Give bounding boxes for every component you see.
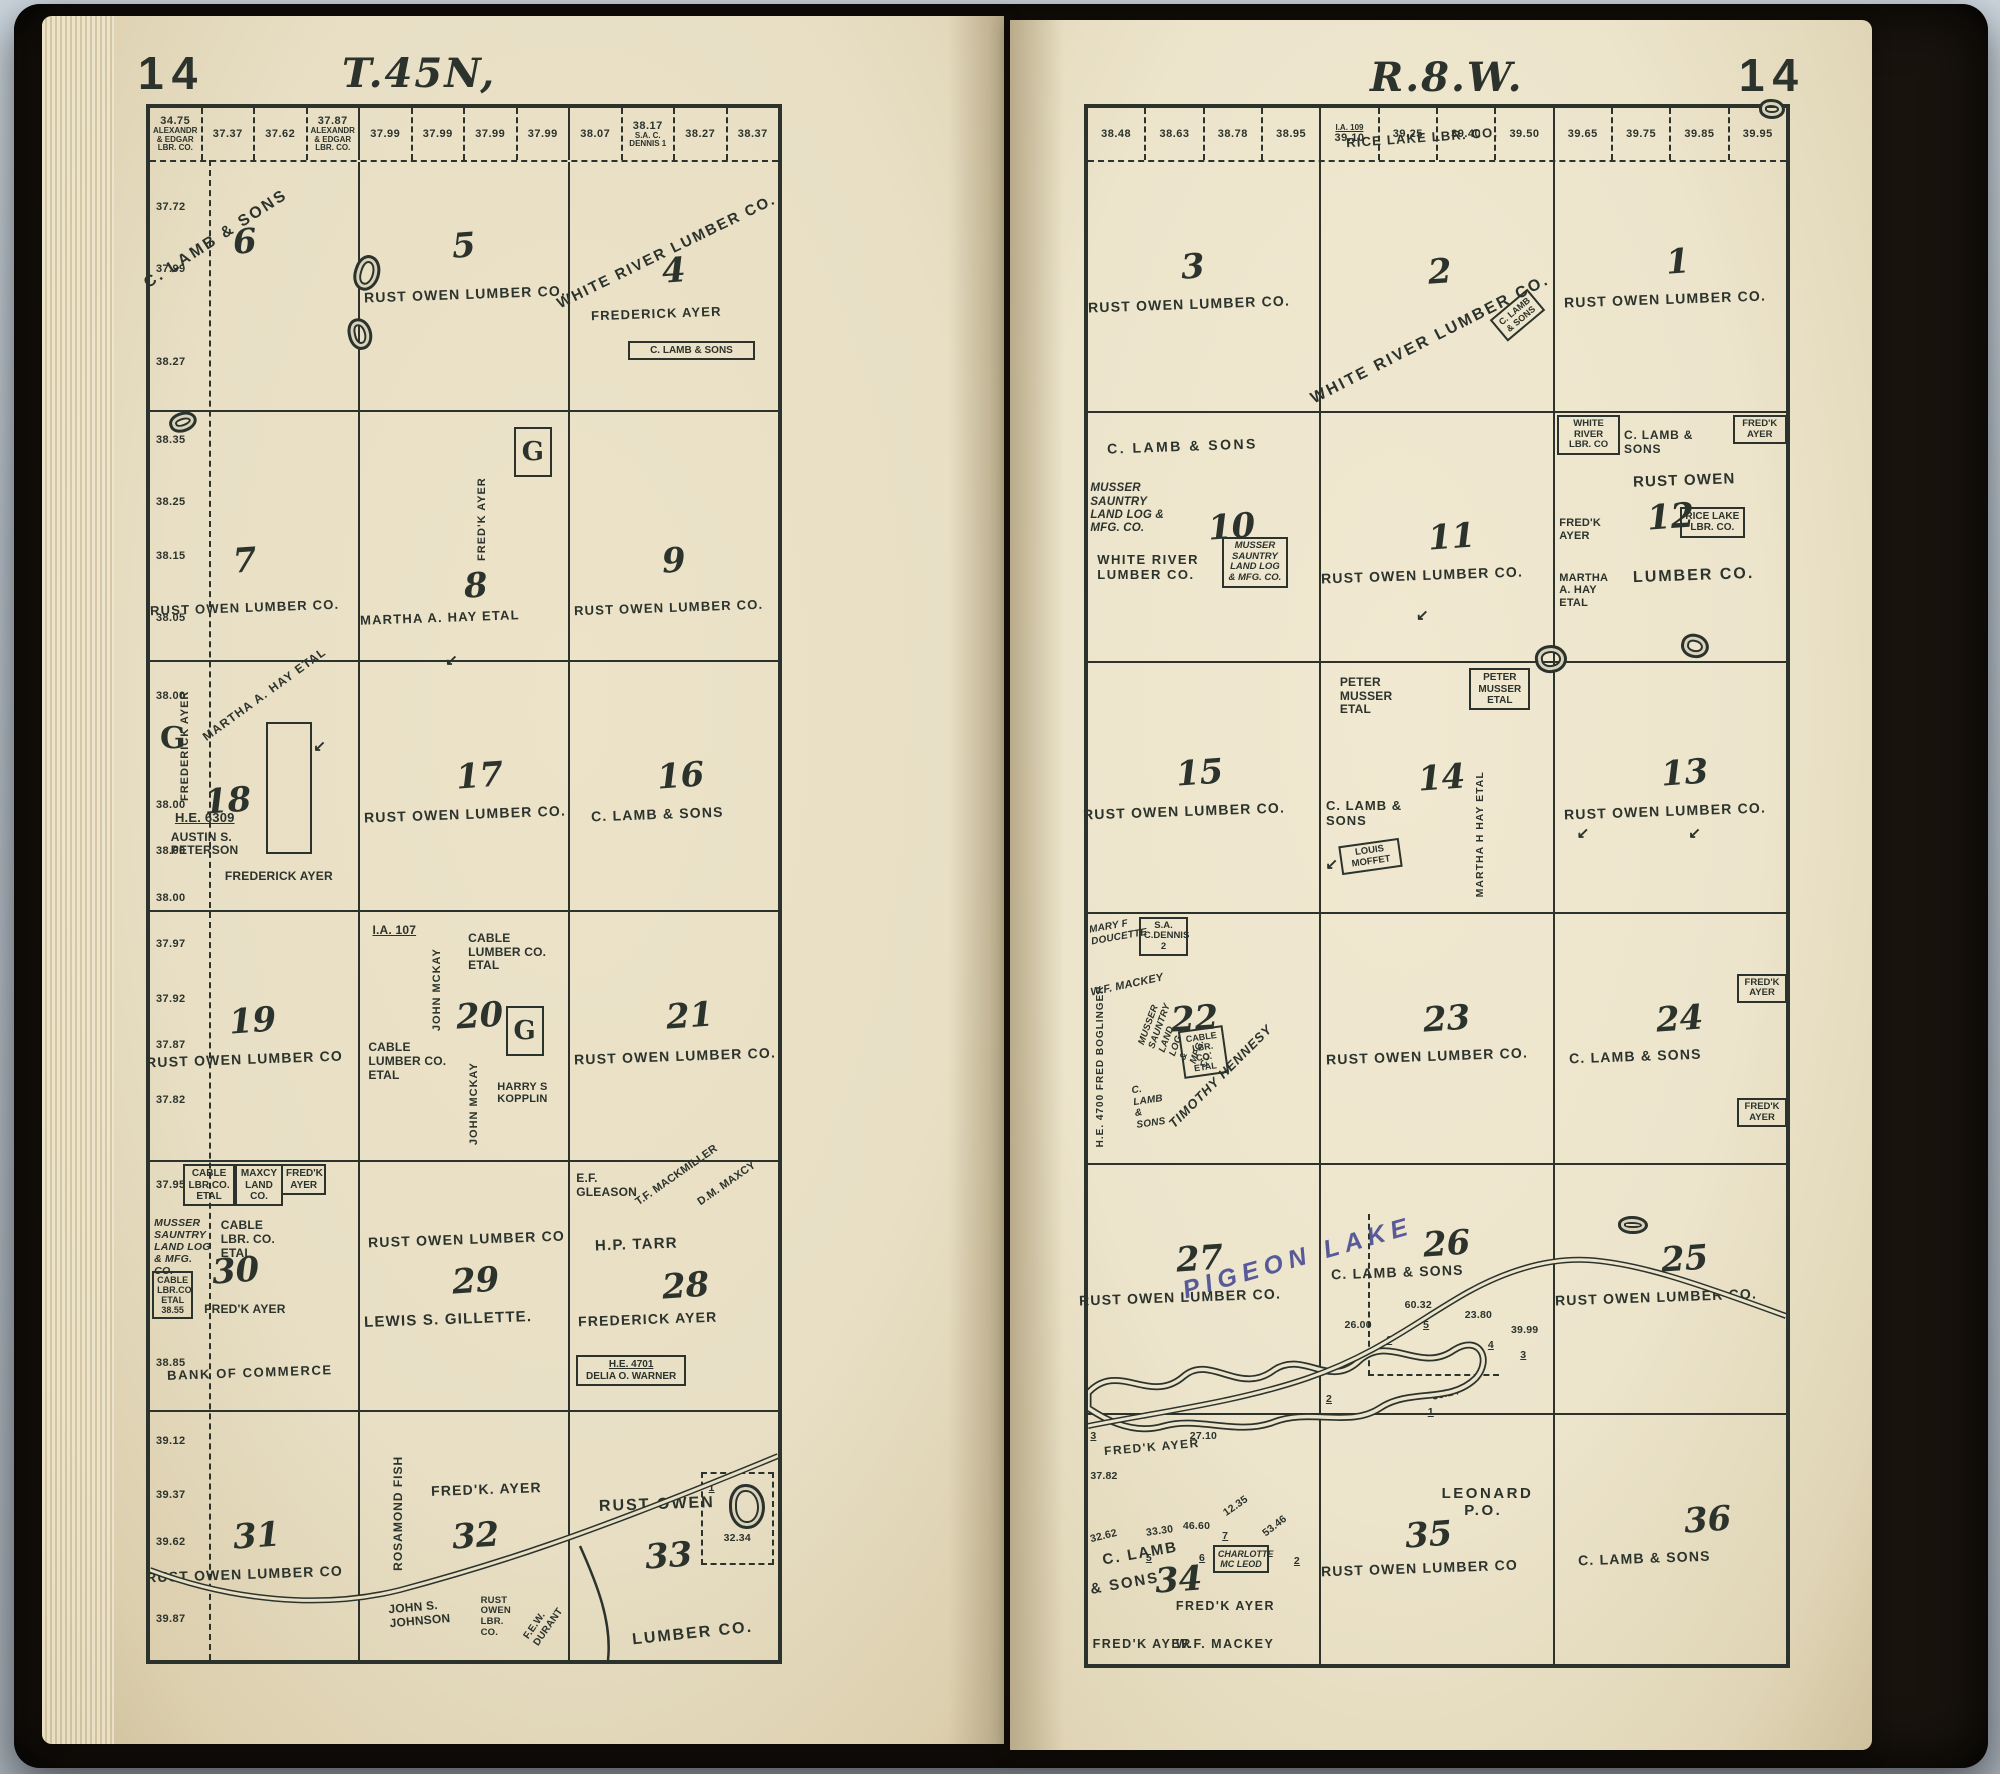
section-row: 15 RUST OWEN LUMBER CO. PETER MUSSER ETA… [1088,661,1786,912]
section-8-government-lot: G [514,427,552,477]
acre-value: 38.37 [738,128,768,140]
section-8-fredk-ayer: FRED'K AYER [476,432,488,561]
leonard-post-office: LEONARD P.O. [1442,1485,1525,1519]
acre-value: 38.48 [1101,128,1131,140]
section-23-number: 23 [1422,997,1472,1040]
section-12-lamb-sons: C. LAMB & SONS [1624,428,1693,456]
photo-of-plat-book: 14 T.45N, 34.75ALEXANDR & EDGAR LBR. CO.… [0,0,2000,1774]
section-row: 6 C. LAMB & SONS 5 RUST OWEN LUMBER CO. … [150,162,778,410]
range-label: R.8.W. [1370,54,1524,101]
section-29-lewis-gillette: LEWIS S. GILLETTE. [364,1308,533,1331]
acre-cell: 37.62 [253,108,306,160]
lot-acre: 46.60 [1183,1520,1210,1532]
edge-acre: 39.12 [156,1435,186,1447]
acre-owner: I.A. 109 [1335,124,1363,132]
section-3-owner: RUST OWEN LUMBER CO. [1088,293,1291,316]
lot-acre: 37.82 [1090,1470,1117,1482]
lot-acre: 33.30 [1145,1523,1174,1539]
section-32-few-durant: F.E.W. DURANT [521,1600,565,1649]
section-20: I.A. 107 JOHN MCKAY CABLE LUMBER CO. ETA… [358,912,568,1160]
edge-acre: 37.92 [156,993,186,1005]
section-1: 1 RUST OWEN LUMBER CO. [1553,162,1786,411]
acre-cell: 37.87ALEXANDR & EDGAR LBR. CO. [306,108,359,160]
section-33: RUST OWEN 33 1 32.34 LUMBER CO. [568,1412,778,1660]
section-33-owner: RUST OWEN [599,1494,715,1516]
section-14: PETER MUSSER ETAL PETER MUSSER ETAL 14 C… [1319,663,1552,912]
section-14-martha-hay-strip: MARTHA H HAY ETAL [1474,773,1486,897]
section-22-mary-doucette: MARY F DOUCETTE [1089,918,1134,948]
section-30-bank-of-commerce: BANK OF COMMERCE [166,1362,332,1383]
section-30-maxcy-land: MAXCY LAND CO. [235,1164,282,1206]
acre-cell: 37.99 [516,108,569,160]
section-grid-right: 3 RUST OWEN LUMBER CO. 2 WHITE RIVER LUM… [1088,162,1786,1664]
section-31-number: 31 [232,1515,282,1558]
section-12-rice-lake-box: RICE LAKE LBR. CO. [1680,507,1746,537]
section-14-peter-musser-ne: PETER MUSSER ETAL [1469,668,1530,710]
section-29-number: 29 [450,1260,500,1303]
edge-acre: 38.00 [156,845,186,857]
edge-acre: 38.85 [156,1357,186,1369]
acre-cell: 38.63 [1144,108,1202,160]
section-9-owner: RUST OWEN LUMBER CO. [574,597,764,619]
section-24-fredk-ayer-ne: FRED'K AYER [1737,974,1786,1003]
section-15-number: 15 [1175,751,1225,794]
section-10: C. LAMB & SONS MUSSER SAUNTRY LAND LOG &… [1088,413,1319,662]
section-23: 23 RUST OWEN LUMBER CO. [1319,914,1552,1163]
right-page: R.8.W. 14 38.48 38.63 38.78 38.95 I.A. 1… [1010,20,1872,1750]
section-20-john-mckay-strip2: JOHN MCKAY [468,1036,480,1145]
edge-acre: 39.37 [156,1489,186,1501]
acre-cell: 37.99 [411,108,464,160]
section-33-owner-2: LUMBER CO. [632,1619,755,1650]
lot-acre: 32.62 [1089,1527,1118,1545]
lot-number: 7 [1222,1530,1228,1542]
section-30: CABLE LBR.CO. ETAL MAXCY LAND CO. FRED'K… [150,1162,358,1410]
acre-cell: 38.27 [673,108,726,160]
acre-cell: 37.99 [463,108,516,160]
survey-arrow: ↙ [1688,824,1701,842]
lot-acre: 38.14 [1431,1386,1460,1403]
edge-acre: 37.87 [156,1039,186,1051]
survey-arrow: ↙ [445,651,458,669]
section-1-number: 1 [1664,241,1690,283]
section-29: RUST OWEN LUMBER CO 29 LEWIS S. GILLETTE… [358,1162,568,1410]
section-1-owner: RUST OWEN LUMBER CO. [1564,288,1767,311]
section-12-owner-2: LUMBER CO. [1633,565,1755,587]
section-36-number: 36 [1683,1498,1733,1541]
section-28-ef-gleason: E.F. GLEASON [576,1172,626,1200]
section-29-owner: RUST OWEN LUMBER CO [368,1228,565,1251]
edge-acre: 37.72 [156,201,186,213]
section-18-frederick-ayer: FREDERICK AYER [225,870,333,884]
section-14-number: 14 [1417,756,1467,799]
acre-owner: S.A. C. DENNIS 1 [623,132,674,149]
section-34-number: 34 [1154,1558,1204,1601]
section-25-number: 25 [1660,1238,1710,1281]
section-12-martha-hay: MARTHA A. HAY ETAL [1559,572,1610,610]
acre-cell: 38.78 [1203,108,1261,160]
section-4: WHITE RIVER LUMBER CO. 4 FREDERICK AYER … [568,162,778,410]
section-34-wf-mackey: W.F. MACKEY [1176,1637,1274,1651]
section-row: C. LAMB & SONS MUSSER SAUNTRY LAND LOG &… [1088,411,1786,662]
edge-acre: 38.05 [156,612,186,624]
edge-acre: 39.62 [156,1536,186,1548]
section-18-parcel-outline [266,722,312,855]
g-letter: G [513,1016,535,1046]
section-30-musser-sauntry: MUSSER SAUNTRY LAND LOG & MFG. CO. [154,1217,212,1277]
section-row: 3 FRED'K AYER 37.82 27.10 32.62 C. LAMB … [1088,1413,1786,1664]
acre-value: 37.99 [528,128,558,140]
section-row: FREDERICK AYER MARTHA A. HAY ETAL 18 H.E… [150,660,778,910]
edge-acre: 37.99 [156,263,186,275]
section-31-owner: RUST OWEN LUMBER CO [146,1562,343,1585]
section-30-cable-lbr-3: CABLE LBR.CO ETAL 38.55 [152,1271,193,1319]
lot-number: 6 [1199,1552,1205,1564]
section-row: 31 RUST OWEN LUMBER CO ROSAMOND FISH FRE… [150,1410,778,1660]
section-16-owner: C. LAMB & SONS [591,804,724,825]
section-20-john-mckay-strip: JOHN MCKAY [431,922,443,1031]
acre-value: 39.95 [1743,128,1773,140]
lot-number: 2 [1294,1555,1300,1567]
small-lake-icon [729,1484,765,1529]
section-10-musser-sauntry: MUSSER SAUNTRY LAND LOG & MFG. CO. [1090,482,1173,535]
acre-cell: 39.50 [1494,108,1552,160]
section-22-lamb-sons: C. LAMB & SONS [1131,1081,1167,1131]
edge-acre: 38.00 [156,690,186,702]
acre-cell: 39.85 [1669,108,1727,160]
lot-number: 3 [1090,1430,1096,1442]
lot-number: 3 [1520,1349,1526,1361]
section-13-number: 13 [1660,751,1710,794]
section-12-white-river-box: WHITE RIVER LBR. CO [1557,415,1620,455]
section-13-owner: RUST OWEN LUMBER CO. [1564,799,1767,822]
lot-acre: 26.00 [1344,1319,1371,1331]
lot-acre: 53.46 [1261,1513,1290,1539]
lake-acreage: 32.34 [724,1532,751,1544]
section-11-owner: RUST OWEN LUMBER CO. [1321,563,1524,586]
section-27-owner: RUST OWEN LUMBER CO. [1079,1285,1282,1308]
section-20-harry-kopplin: HARRY S KOPPLIN [497,1081,555,1106]
section-row: MARY F DOUCETTE S.A. C.DENNIS 2 W.F. MAC… [1088,912,1786,1163]
acre-value: 38.78 [1218,128,1248,140]
section-row: 7 RUST OWEN LUMBER CO. FRED'K AYER G 8 M… [150,410,778,660]
acre-cell: 39.65 [1553,108,1611,160]
edge-acre: 39.87 [156,1613,186,1625]
acre-value: 39.85 [1684,128,1714,140]
edge-acre: 38.15 [156,550,186,562]
section-2-number: 2 [1426,251,1452,293]
section-32-john-johnson: JOHN S. JOHNSON [388,1597,465,1631]
section-33-lake-lot: 1 32.34 [701,1472,774,1565]
survey-arrow: ↙ [1325,855,1338,873]
section-32-number: 32 [450,1515,500,1558]
section-34-fredk-ayer-nw: FRED'K AYER [1104,1436,1201,1458]
section-28-dm-maxcy: D.M. MAXCY [695,1159,758,1208]
section-28-number: 28 [660,1265,710,1308]
section-17: 17 RUST OWEN LUMBER CO. [358,662,568,910]
section-24: 24 C. LAMB & SONS FRED'K AYER FRED'K AYE… [1553,914,1786,1163]
acre-cell: 37.99 [358,108,411,160]
section-25: 25 RUST OWEN LUMBER CO. [1553,1165,1786,1414]
section-22-sa-dennis: S.A. C.DENNIS 2 [1139,917,1188,957]
acre-value: 39.75 [1626,128,1656,140]
section-22: MARY F DOUCETTE S.A. C.DENNIS 2 W.F. MAC… [1088,914,1319,1163]
section-row: 19 RUST OWEN LUMBER CO I.A. 107 JOHN MCK… [150,910,778,1160]
left-page: 14 T.45N, 34.75ALEXANDR & EDGAR LBR. CO.… [42,16,1004,1744]
acre-cell: 38.95 [1261,108,1319,160]
section-4-owner: FREDERICK AYER [591,304,722,324]
section-16: 16 C. LAMB & SONS [568,662,778,910]
section-28-hp-tarr: H.P. TARR [595,1235,678,1255]
section-30-cable-lbr: CABLE LBR.CO. ETAL [183,1164,235,1206]
acre-value: 38.63 [1159,128,1189,140]
section-24-number: 24 [1655,997,1705,1040]
section-row: 3 RUST OWEN LUMBER CO. 2 WHITE RIVER LUM… [1088,162,1786,411]
section-34: 3 FRED'K AYER 37.82 27.10 32.62 C. LAMB … [1088,1415,1319,1664]
section-32-fredk-ayer: FRED'K. AYER [430,1480,541,1500]
section-grid-left: 6 C. LAMB & SONS 5 RUST OWEN LUMBER CO. … [150,162,778,1660]
acre-cell: 34.75ALEXANDR & EDGAR LBR. CO. [150,108,201,160]
lot-acre: 27.10 [1190,1430,1217,1442]
section-row: CABLE LBR.CO. ETAL MAXCY LAND CO. FRED'K… [150,1160,778,1410]
acre-value: 39.50 [1509,128,1539,140]
section-10-musser-box: MUSSER SAUNTRY LAND LOG & MFG. CO. [1222,537,1288,588]
left-map: 34.75ALEXANDR & EDGAR LBR. CO. 37.37 37.… [146,104,782,1664]
edge-acre: 38.35 [156,434,186,446]
section-35-owner: RUST OWEN LUMBER CO [1321,1556,1518,1579]
section-5-owner: RUST OWEN LUMBER CO. [364,282,567,305]
edge-acre: 37.95 [156,1179,186,1191]
g-letter: G [522,437,544,467]
acre-value: 37.99 [370,128,400,140]
section-8: FRED'K AYER G 8 MARTHA A. HAY ETAL [358,412,568,660]
section-30-fredk-ayer: FRED'K AYER [281,1164,326,1194]
section-30-fredk-ayer-2: FRED'K AYER [204,1303,286,1317]
acre-cell: 38.17S.A. C. DENNIS 1 [621,108,674,160]
section-21: 21 RUST OWEN LUMBER CO. [568,912,778,1160]
section-19-number: 19 [228,1000,278,1043]
section-5-number: 5 [450,226,476,268]
section-6: 6 C. LAMB & SONS [150,162,358,410]
section-36: 36 C. LAMB & SONS [1553,1415,1786,1664]
edge-acre: 38.00 [156,799,186,811]
section-28-homestead-box: H.E. 4701 DELIA O. WARNER [576,1355,686,1385]
page-number-left: 14 [138,46,205,100]
edge-acre: 38.00 [156,892,186,904]
acre-value: 38.95 [1276,128,1306,140]
section-34-charlotte-mcleod: CHARLOTTE MC LEOD [1213,1545,1269,1573]
section-15: 15 RUST OWEN LUMBER CO. [1088,663,1319,912]
acre-cell: 39.75 [1611,108,1669,160]
acre-owner: ALEXANDR & EDGAR LBR. CO. [308,127,359,152]
section-23-owner: RUST OWEN LUMBER CO. [1326,1045,1529,1068]
section-12-owner: RUST OWEN [1633,471,1736,492]
section-14-peter-musser-nw: PETER MUSSER ETAL [1340,676,1409,717]
section-11: 11 RUST OWEN LUMBER CO. [1319,413,1552,662]
lot-number: 2 [1326,1393,1332,1405]
section-28: E.F. GLEASON T.F. MACKMILLER D.M. MAXCY … [568,1162,778,1410]
section-32: ROSAMOND FISH FRED'K. AYER 32 JOHN S. JO… [358,1412,568,1660]
section-32-rust-owen-lbr: RUST OWEN LBR. CO. [481,1596,518,1640]
section-24-owner: C. LAMB & SONS [1568,1046,1701,1067]
section-21-number: 21 [664,995,714,1038]
survey-arrow: ↙ [1416,606,1429,624]
section-10-lamb-strip: C. LAMB & SONS [1106,435,1257,456]
section-35-number: 35 [1403,1513,1453,1556]
section-35: LEONARD P.O. 35 RUST OWEN LUMBER CO [1319,1415,1552,1664]
section-12-fredk-ayer-w: FRED'K AYER [1559,517,1605,542]
lot-acre: 23.80 [1465,1309,1492,1321]
section-3-number: 3 [1179,246,1205,288]
lot-acre: 60.32 [1405,1299,1432,1311]
section-9-number: 9 [660,540,686,582]
section-34-fredk-ayer-mid: FRED'K AYER [1176,1599,1275,1613]
acre-cell: 38.07 [568,108,621,160]
section-17-number: 17 [454,755,504,798]
section-13: 13 RUST OWEN LUMBER CO. [1553,663,1786,912]
section-8-owner: MARTHA A. HAY ETAL [360,608,520,629]
section-10-owner: WHITE RIVER LUMBER CO. [1097,552,1203,582]
acre-value: 38.27 [685,128,715,140]
section-20-cable-lumber-sw: CABLE LUMBER CO. ETAL [368,1041,447,1082]
section-12: WHITE RIVER LBR. CO C. LAMB & SONS FRED'… [1553,413,1786,662]
section-3: 3 RUST OWEN LUMBER CO. [1088,162,1319,411]
section-12-fredk-ayer-ne: FRED'K AYER [1733,415,1787,444]
lot-number: 5 [1423,1319,1429,1331]
edge-acre: 37.82 [156,1094,186,1106]
edge-acre: 38.27 [156,356,186,368]
acre-value: 37.99 [475,128,505,140]
section-4-number: 4 [660,250,686,292]
edge-government-lot: G [160,721,186,756]
lot-number: 4 [1488,1339,1494,1351]
acre-cell: 38.37 [726,108,779,160]
section-34-sons: & SONS [1089,1569,1160,1598]
section-5: 5 RUST OWEN LUMBER CO. [358,162,568,410]
section-7-number: 7 [232,540,258,582]
lot-number: 6 [1386,1334,1392,1346]
lot-number: 1 [709,1482,715,1494]
section-20-indian-allotment: I.A. 107 [372,924,418,938]
top-acreage-strip-left: 34.75ALEXANDR & EDGAR LBR. CO. 37.37 37.… [150,108,778,162]
right-map: 38.48 38.63 38.78 38.95 I.A. 10939.10 39… [1084,104,1790,1668]
section-22-he4700-boglinger: H.E. 4700 FRED BOGLINGER [1095,1023,1106,1147]
acre-owner: ALEXANDR & EDGAR LBR. CO. [150,127,201,152]
he-number: H.E. 4701 [609,1359,653,1370]
acre-value: 38.17 [633,120,663,132]
section-26: 26 C. LAMB & SONS 60.32 5 26.00 6 23.80 … [1319,1165,1552,1414]
acre-value: 38.07 [580,128,610,140]
section-20-number: 20 [454,995,504,1038]
section-2: 2 WHITE RIVER LUMBER CO. C. LAMB & SONS [1319,162,1552,411]
page-number-right: 14 [1739,48,1806,102]
section-11-number: 11 [1426,516,1476,559]
section-21-owner: RUST OWEN LUMBER CO. [574,1045,777,1068]
section-16-number: 16 [656,755,706,798]
section-14-louis-moffet: LOUIS MOFFET [1338,838,1402,875]
acre-value: 39.65 [1568,128,1598,140]
lot-number: 5 [1146,1552,1152,1564]
section-32-rosamond-fish: ROSAMOND FISH [391,1427,405,1571]
acre-value: 37.99 [423,128,453,140]
section-33-number: 33 [644,1534,694,1577]
pond-icon [1759,99,1785,119]
section-9: 9 RUST OWEN LUMBER CO. [568,412,778,660]
section-18-homestead-entry: H.E. 6309 [175,811,235,826]
section-17-owner: RUST OWEN LUMBER CO. [364,802,567,825]
pond-icon [1618,1216,1648,1234]
section-14-owner: C. LAMB & SONS [1326,798,1419,828]
survey-arrow: ↙ [313,737,326,755]
section-24-fredk-ayer-se: FRED'K AYER [1737,1098,1786,1127]
edge-acre: 37.97 [156,938,186,950]
township-label: T.45N, [342,50,496,97]
acre-value: 37.62 [265,128,295,140]
acre-cell: 37.37 [201,108,254,160]
section-15-owner: RUST OWEN LUMBER CO. [1083,799,1286,822]
section-20-cable-lumber-ne: CABLE LUMBER CO. ETAL [468,932,547,973]
acre-cell: 38.48 [1088,108,1144,160]
section-25-owner: RUST OWEN LUMBER CO. [1554,1285,1757,1308]
section-36-owner: C. LAMB & SONS [1578,1547,1711,1568]
lot-acre: 39.99 [1511,1324,1538,1336]
section-20-government-lot: G [506,1006,544,1056]
section-4-sub-owner: C. LAMB & SONS [628,341,754,360]
acre-value: 37.37 [213,128,243,140]
delia-warner: DELIA O. WARNER [586,1371,676,1382]
section-8-number: 8 [463,565,489,607]
lot-acre: 12.35 [1221,1493,1250,1519]
section-30-number: 30 [211,1250,261,1293]
edge-acre: 38.25 [156,496,186,508]
section-28-frederick-ayer: FREDERICK AYER [578,1308,718,1329]
survey-arrow: ↙ [1577,824,1590,842]
